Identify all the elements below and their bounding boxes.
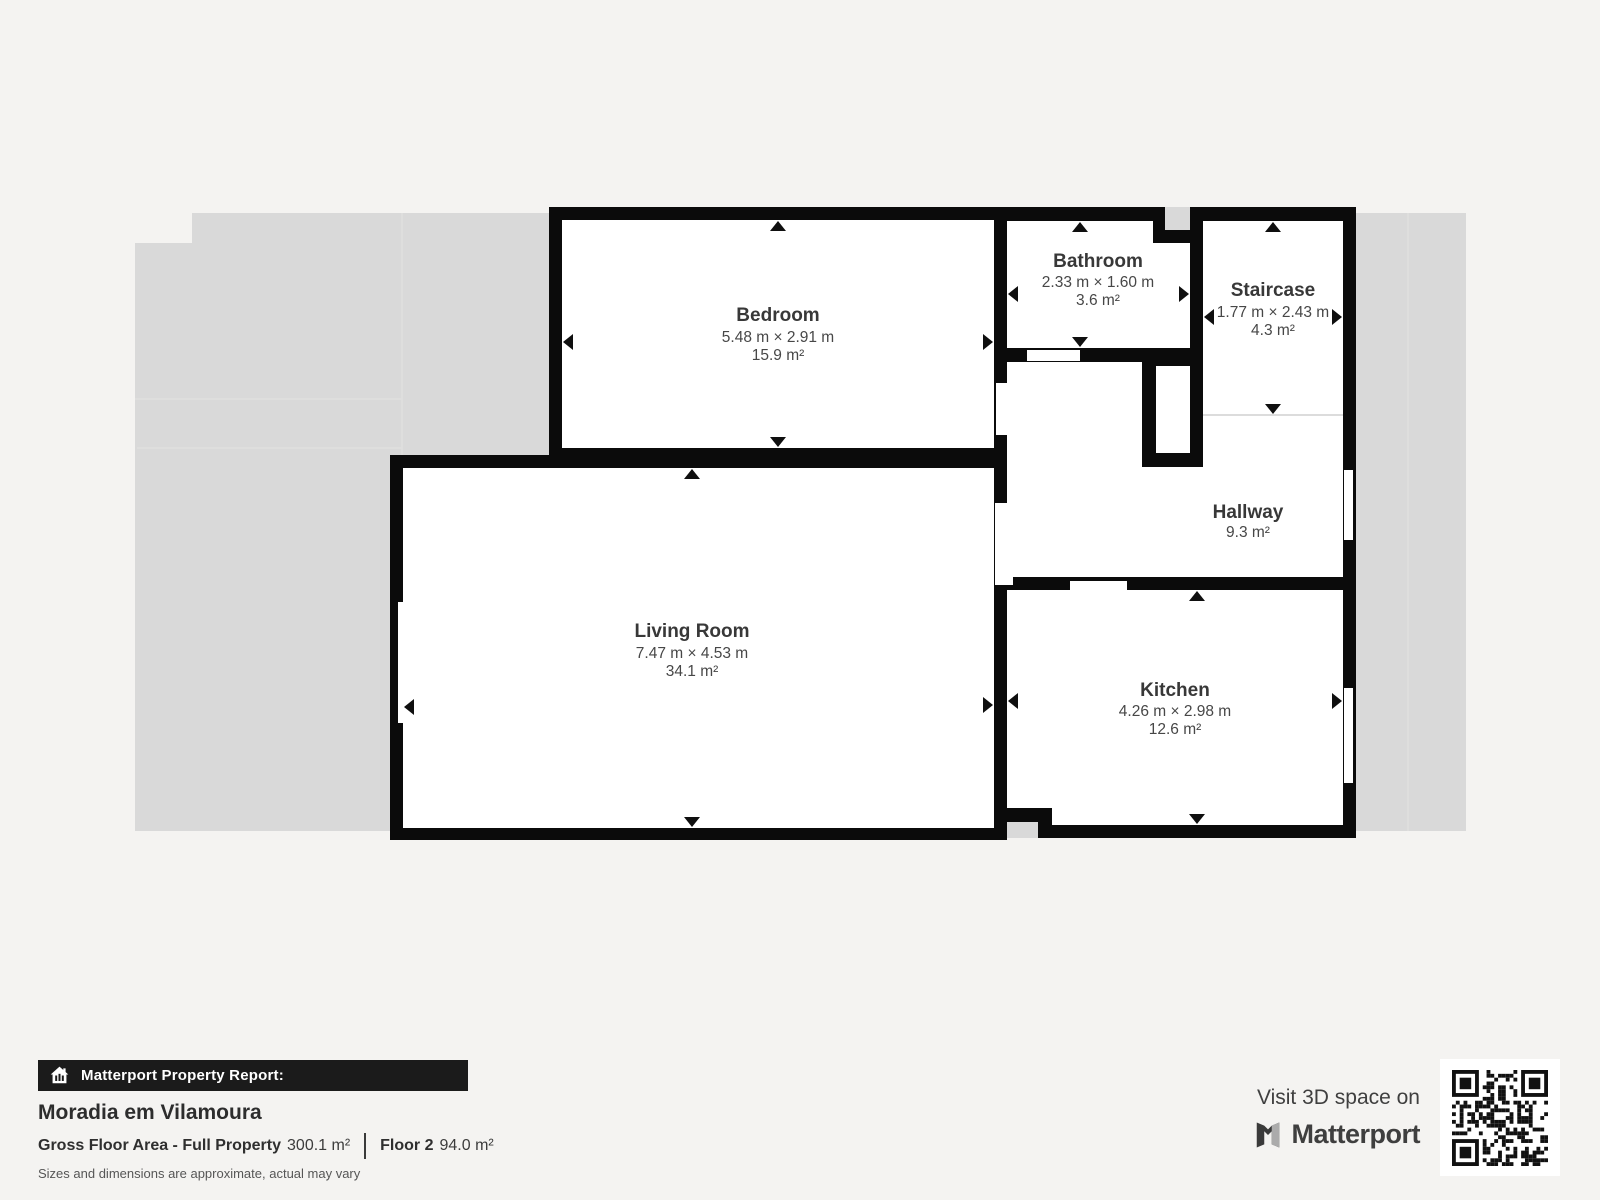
staircase-label: Staircase	[1231, 280, 1316, 301]
bedroom-label: Bedroom	[736, 305, 819, 326]
room-hallway-upper	[1007, 362, 1142, 467]
hallway-area: 9.3 m²	[1226, 524, 1270, 541]
living-room-hallway-door	[995, 503, 1013, 585]
bathroom-area: 3.6 m²	[1076, 292, 1120, 309]
bedroom-dimensions: 5.48 m × 2.91 m	[722, 329, 834, 346]
stats-divider	[364, 1133, 366, 1159]
floor-plan: Bedroom 5.48 m × 2.91 m 15.9 m² Bathroom…	[0, 0, 1600, 1200]
matterport-logo-icon	[1253, 1120, 1283, 1150]
kitchen-label: Kitchen	[1140, 680, 1210, 701]
report-bar-label: Matterport Property Report:	[81, 1067, 284, 1084]
floor-value: 94.0 m²	[440, 1137, 494, 1155]
bathroom-label: Bathroom	[1053, 251, 1143, 272]
qr-code	[1440, 1059, 1560, 1176]
gross-floor-area-label: Gross Floor Area - Full Property	[38, 1137, 281, 1155]
kitchen-corner-notch	[1007, 822, 1038, 838]
bedroom-area: 15.9 m²	[752, 347, 805, 364]
qr-code-modules	[1452, 1070, 1548, 1166]
living-room-area: 34.1 m²	[666, 663, 719, 680]
kitchen-dimensions: 4.26 m × 2.98 m	[1119, 703, 1231, 720]
bedroom-door	[996, 383, 1007, 435]
bathroom-door	[1027, 350, 1080, 361]
room-hallway-stair-opening	[1203, 415, 1343, 467]
visit-3d-space-label: Visit 3D space on	[1120, 1086, 1420, 1110]
promo-block: Visit 3D space on Matterport	[1120, 1086, 1420, 1150]
matterport-wordmark: Matterport	[1292, 1119, 1421, 1150]
property-report-page: Bedroom 5.48 m × 2.91 m 15.9 m² Bathroom…	[0, 0, 1600, 1200]
hallway-kitchen-door	[1070, 581, 1127, 590]
duct-shaft-interior	[1156, 366, 1190, 453]
floor-area-stats: Gross Floor Area - Full Property 300.1 m…	[38, 1134, 494, 1158]
house-chart-icon	[49, 1065, 70, 1086]
kitchen-area: 12.6 m²	[1149, 721, 1202, 738]
hallway-label: Hallway	[1213, 502, 1284, 523]
property-name: Moradia em Vilamoura	[38, 1101, 262, 1125]
staircase-area: 4.3 m²	[1251, 322, 1295, 339]
hallway-window	[1344, 470, 1353, 540]
gross-floor-area-value: 300.1 m²	[287, 1137, 350, 1155]
living-room-label: Living Room	[634, 621, 749, 642]
living-room-window	[398, 602, 407, 723]
living-room-dimensions: 7.47 m × 4.53 m	[636, 645, 748, 662]
room-hallway-lower	[1007, 467, 1343, 577]
report-bar: Matterport Property Report:	[38, 1060, 468, 1091]
bathroom-dimensions: 2.33 m × 1.60 m	[1042, 274, 1154, 291]
floor-label: Floor 2	[380, 1137, 433, 1155]
disclaimer-text: Sizes and dimensions are approximate, ac…	[38, 1166, 360, 1181]
kitchen-window	[1344, 688, 1353, 783]
outline-notch	[1165, 207, 1190, 230]
staircase-dimensions: 1.77 m × 2.43 m	[1217, 304, 1329, 321]
